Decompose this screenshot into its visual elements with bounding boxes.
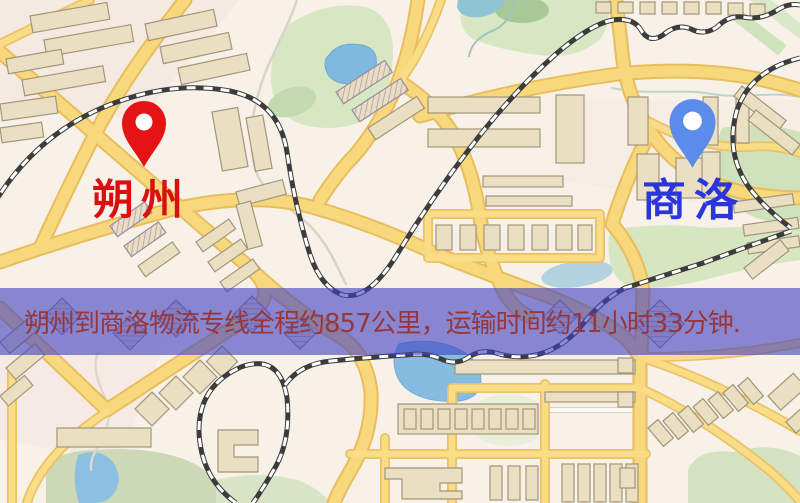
map-viewport[interactable]: 朔州 商洛 朔州到商洛物流专线全程约857公里，运输时间约11小时33分钟. [0, 0, 800, 503]
destination-pin[interactable] [665, 97, 720, 170]
origin-pin[interactable] [118, 99, 170, 169]
route-info-banner: 朔州到商洛物流专线全程约857公里，运输时间约11小时33分钟. [0, 288, 800, 355]
route-info-text: 朔州到商洛物流专线全程约857公里，运输时间约11小时33分钟. [0, 303, 740, 340]
location-pin-icon [665, 97, 720, 170]
destination-label: 商洛 [642, 179, 746, 223]
map-canvas [0, 0, 800, 503]
origin-label: 朔州 [92, 179, 190, 221]
location-pin-icon [118, 99, 170, 169]
